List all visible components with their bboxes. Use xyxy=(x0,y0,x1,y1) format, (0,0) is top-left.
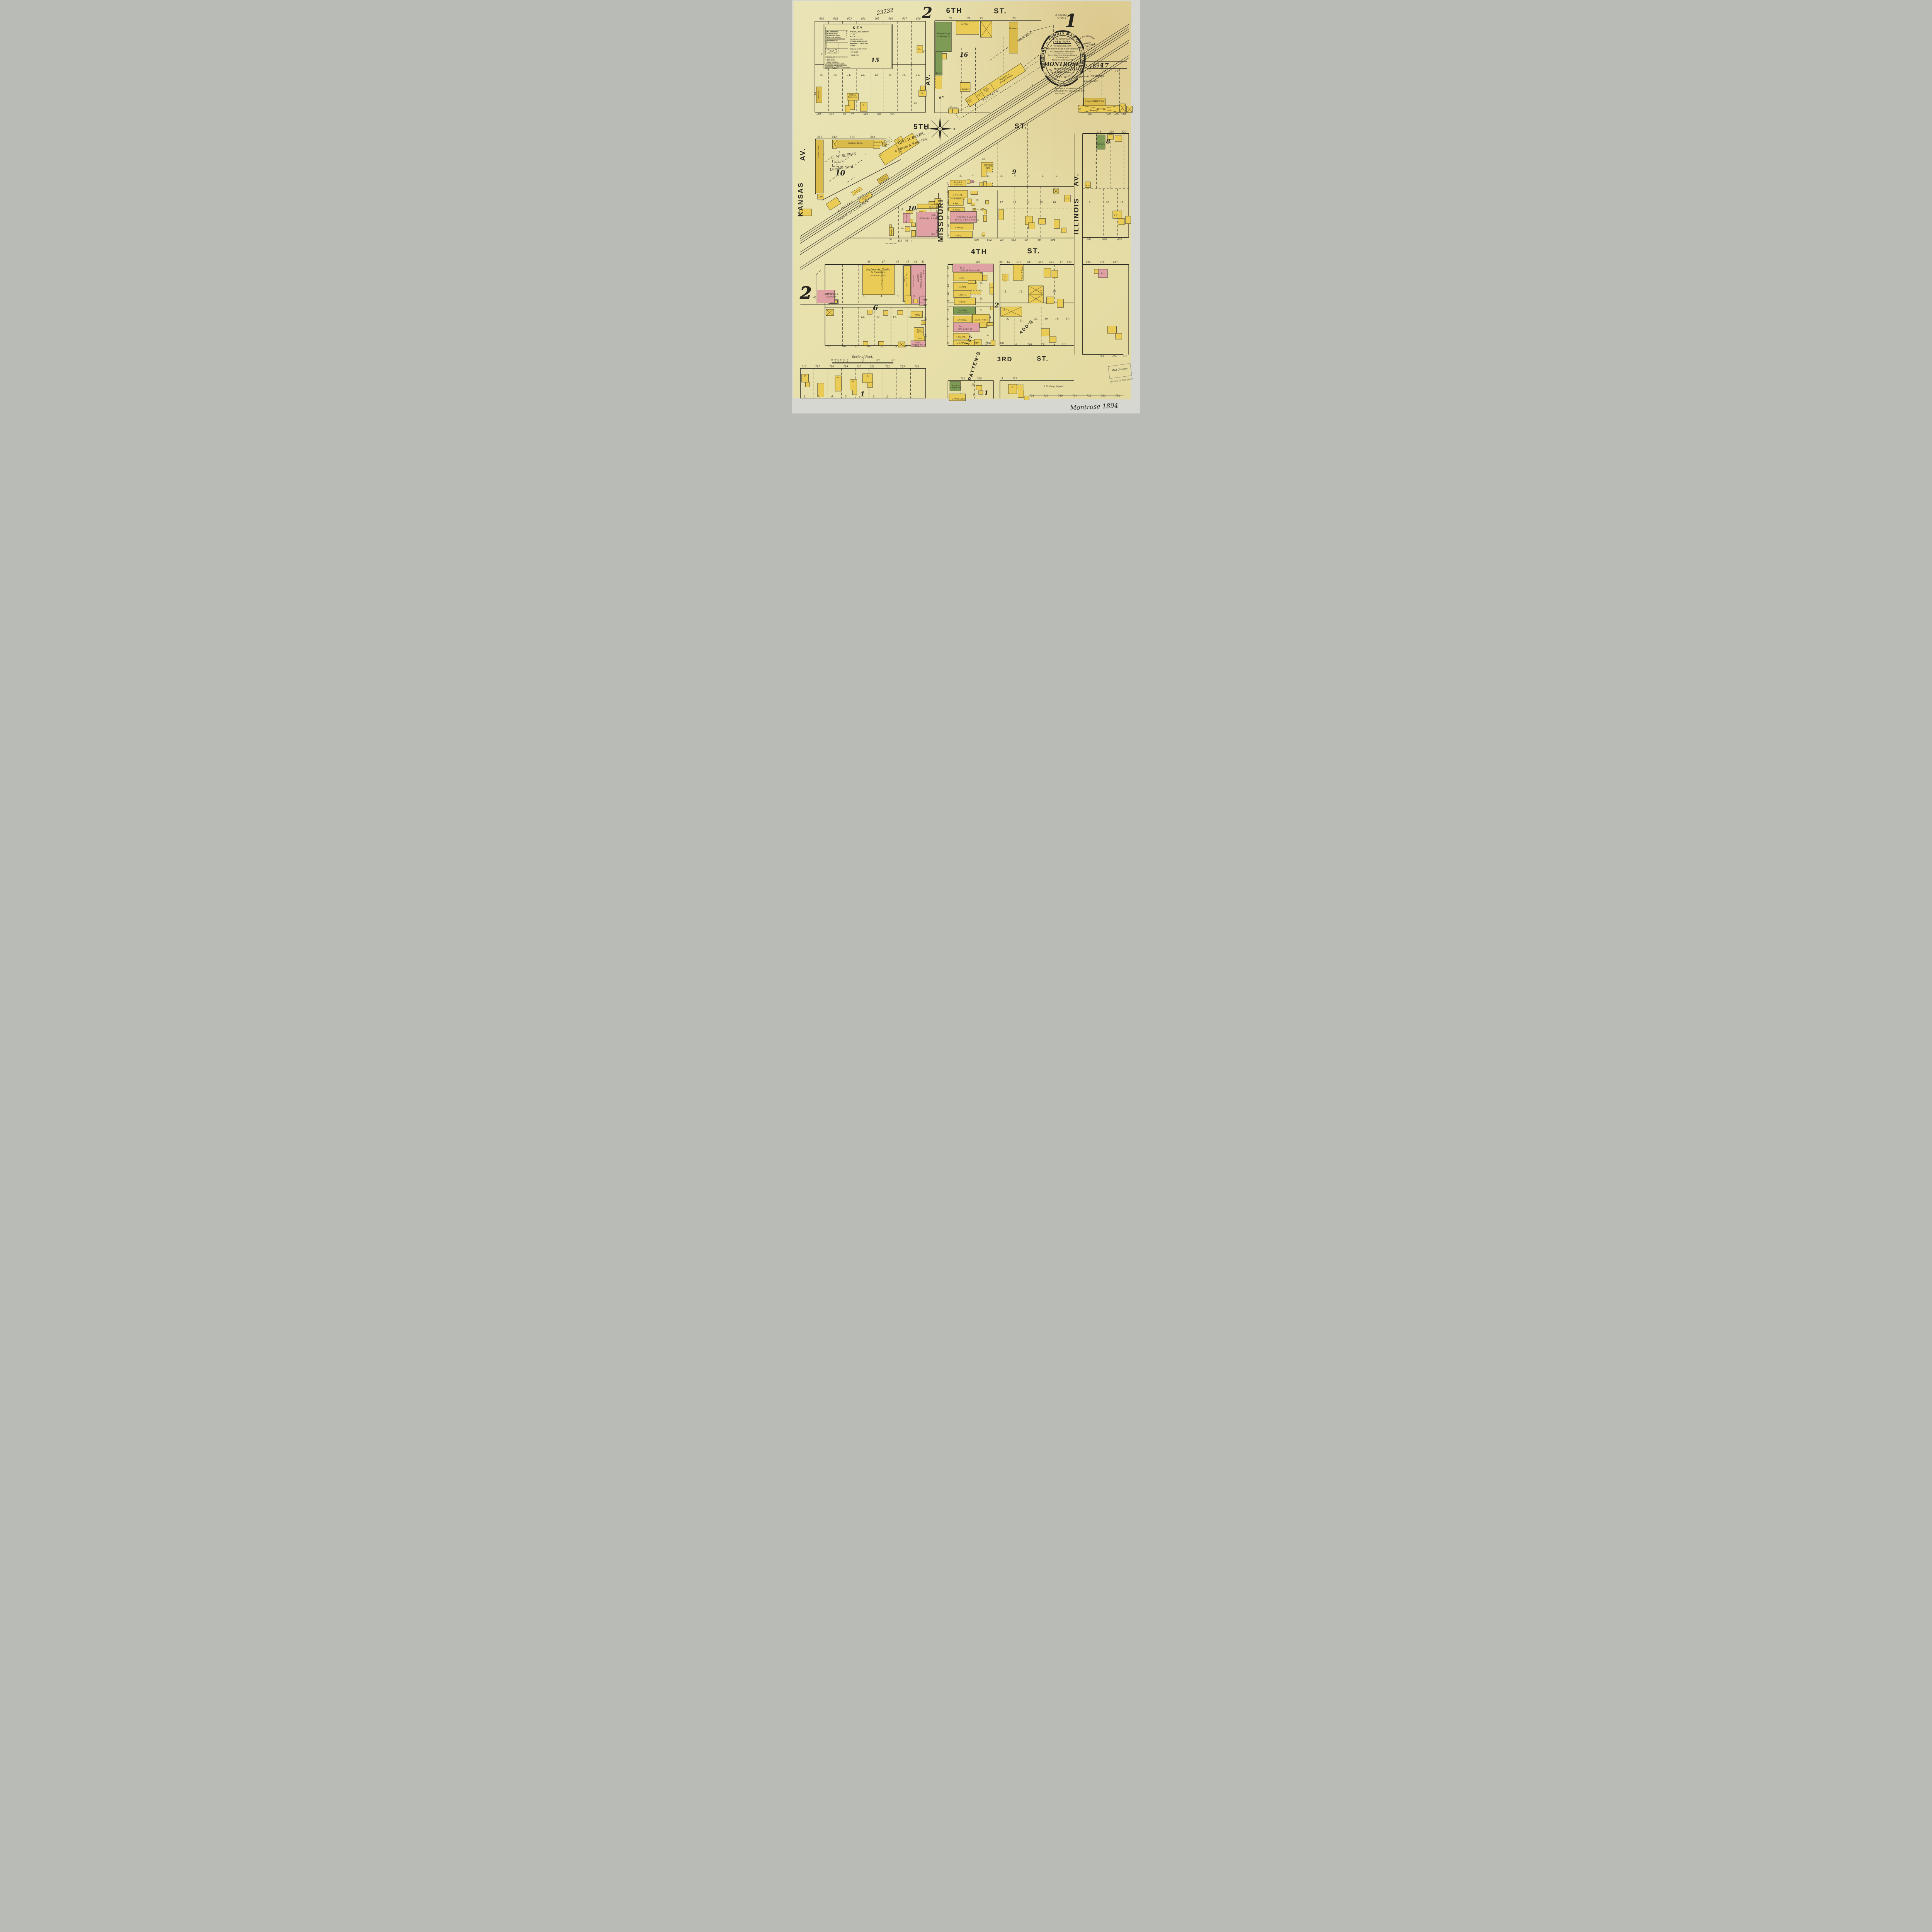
building xyxy=(912,230,916,236)
lot-number: 13 xyxy=(947,284,949,287)
building-label: D. x xyxy=(1101,273,1105,275)
lot-number: 20 xyxy=(1000,239,1003,241)
lot-number: 67 xyxy=(851,113,854,116)
building-label: HETER xyxy=(983,164,993,167)
lot-number: 7. xyxy=(972,174,974,177)
building-label: Livery. xyxy=(1090,109,1098,112)
block-number: 17 xyxy=(1100,61,1109,69)
building-label: Vac. xyxy=(918,48,922,50)
lot-number: 605 xyxy=(875,17,879,20)
lot-number: 9 xyxy=(947,318,949,320)
building xyxy=(912,223,916,227)
lot-number: 14. xyxy=(893,316,897,318)
lot-number: 39 xyxy=(924,334,927,337)
scale-tick-label: 40 xyxy=(834,359,837,361)
street-label: AV. xyxy=(1072,173,1080,186)
building xyxy=(990,307,993,310)
lot-number: 73 xyxy=(949,17,952,20)
street-label: AV. xyxy=(925,73,932,85)
lot-number: 2. xyxy=(913,295,916,298)
seal-county: Henry County. xyxy=(1053,68,1071,70)
lot-number: 8. xyxy=(980,282,983,284)
compass-e: E xyxy=(954,128,955,131)
building xyxy=(983,182,986,186)
building xyxy=(942,54,947,59)
building-label: Tin Shop. xyxy=(957,310,968,312)
key-left-row: STEAM BOILER xyxy=(827,40,838,41)
lot-number: 14 xyxy=(947,274,949,277)
building xyxy=(905,296,911,304)
building-label: D. G. xyxy=(959,267,965,269)
lot-number: 1. xyxy=(1056,175,1058,177)
lot-number: 16. xyxy=(1053,201,1057,204)
street-label: ST. xyxy=(1015,122,1028,130)
building-label: Bl. Sm. & xyxy=(1097,142,1104,144)
lot-number: 3. xyxy=(987,325,989,328)
lot-number: 78 xyxy=(1079,108,1082,111)
building-label: x Lumber. xyxy=(960,88,970,90)
lot-number: 6. xyxy=(980,298,983,301)
building-label: 6 IRON COLUMNS xyxy=(913,276,914,287)
lot-number: 23 xyxy=(947,216,949,219)
lot-number: 603 xyxy=(847,17,852,20)
lot-number: 704 xyxy=(902,345,907,348)
street-label: ST. xyxy=(1037,355,1049,362)
lot-number: 2. xyxy=(1041,175,1044,177)
block-number: 9 xyxy=(1012,168,1016,175)
lot-number: 4. xyxy=(1014,175,1017,177)
lot-number: 11. xyxy=(1115,70,1119,72)
lot-number: 610 xyxy=(1017,261,1021,264)
lot-number: 10. xyxy=(833,74,837,77)
lot-number: 5 xyxy=(1015,343,1017,345)
lot-number: 723 xyxy=(900,366,905,368)
lot-number: 14. xyxy=(1026,201,1030,204)
building-label: x P.O. xyxy=(957,343,963,345)
building xyxy=(968,281,975,284)
lot-number: 719 xyxy=(844,366,848,368)
building-label: x Mill'y. xyxy=(958,294,966,296)
building-label: x Photo Gall'y. xyxy=(952,398,965,400)
building xyxy=(968,199,972,203)
scale-tick-label: 10 xyxy=(843,359,845,361)
lot-number: 6. xyxy=(916,209,918,211)
lot-number: 607 xyxy=(1117,238,1122,241)
building-label: D. xyxy=(866,375,869,378)
lot-number: 714 xyxy=(1112,355,1117,357)
lot-number: 732 xyxy=(1087,395,1091,398)
building-label: Lumber Shed. xyxy=(818,145,820,160)
key-legend: KEY NO. OF STORIES3SHINGLE ROOF×COMPOST'… xyxy=(824,24,892,69)
lot-number: 33 xyxy=(894,345,897,348)
lot-number: 713 xyxy=(1099,355,1104,357)
lot-number: 8. xyxy=(1089,201,1091,204)
lot-number: 722 xyxy=(885,366,890,368)
lot-number: 13. xyxy=(876,316,880,318)
building-label: Bl. Sm. & xyxy=(951,385,959,387)
seal-noprotection: NO PROTECTION AGAINST FIRE. xyxy=(1052,53,1073,54)
building xyxy=(972,314,989,323)
building xyxy=(1017,385,1023,390)
lot-number: 40 xyxy=(924,317,927,321)
building-label: Well & Wind Mill. xyxy=(886,243,897,245)
building-label: Vac. xyxy=(901,228,905,230)
building-label: IRON CL. ALL SIDES. xyxy=(957,312,969,314)
scale-tick-label: 30 xyxy=(837,359,839,361)
building-label: Mill'y. x xyxy=(915,314,922,316)
building-label: Drugs. xyxy=(914,342,921,344)
building-label: Rest'. xyxy=(917,329,922,331)
seal-date: + APRIL 1894 + xyxy=(1055,71,1071,74)
building-label: x Gro. xyxy=(955,235,962,237)
lot-number: 65 xyxy=(814,92,816,95)
building-label: 16' xyxy=(836,163,838,165)
building xyxy=(980,182,983,186)
building xyxy=(1115,136,1122,141)
lot-number: 3. xyxy=(897,295,899,298)
lot-number: 501 xyxy=(816,113,821,116)
building-label: ELEV'D. W. TANK. xyxy=(1094,101,1105,102)
lot-number: 12. xyxy=(1000,201,1004,204)
building-label: HO. xyxy=(985,167,990,170)
key-right-row: FRAME PARTITION xyxy=(850,38,863,40)
building-label: Lunch & xyxy=(954,181,963,184)
building-label: I.O.O.F. HALL 2ND xyxy=(881,270,883,290)
lot-number: 18. xyxy=(1055,318,1059,321)
building xyxy=(889,225,891,228)
building xyxy=(1107,326,1116,333)
building xyxy=(953,272,982,281)
lot-number: 7. xyxy=(818,395,820,398)
building xyxy=(1126,216,1131,224)
building-label: Barber. xyxy=(922,299,928,301)
lot-number: 10. xyxy=(971,384,975,386)
lot-number: 729 xyxy=(1044,395,1048,398)
sanborn-map-page: P l a t f o r m .GentsWaitingR'm.TicketO… xyxy=(792,0,1140,413)
building-label: x Drs. Off. xyxy=(956,336,966,338)
building-label: D. xyxy=(837,377,840,379)
building xyxy=(935,52,942,75)
building xyxy=(953,333,969,339)
building-label: Off's. & Printing 2d xyxy=(961,269,980,272)
lot-number: 6. xyxy=(987,175,990,178)
lot-number: 14. xyxy=(888,74,892,77)
street-label: 4TH xyxy=(971,247,987,255)
building xyxy=(970,291,981,294)
building-label: Barber. xyxy=(917,331,923,333)
lot-number: 7. xyxy=(1095,162,1097,165)
building-label: Granary. xyxy=(1009,27,1018,30)
lot-number: 606 xyxy=(1102,238,1107,241)
building xyxy=(883,311,888,315)
lot-number: 47 xyxy=(881,261,885,264)
lot-number: 520 xyxy=(1122,131,1126,133)
building xyxy=(1046,297,1054,304)
building xyxy=(979,391,983,395)
lot-number: 66 xyxy=(843,113,846,116)
lot-number: 12 xyxy=(947,292,949,295)
building-label: D.G. Clo. & B.& S. xyxy=(956,216,976,219)
lot-number: 603 xyxy=(1011,239,1016,241)
lot-number: 3. xyxy=(1032,84,1034,87)
lot-number: 4. xyxy=(880,295,883,298)
lot-number: 715 xyxy=(1122,355,1127,357)
lot-number: 3. xyxy=(1028,175,1030,177)
key-left-row: SHINGLE ROOF xyxy=(827,33,838,35)
lot-number: 32 xyxy=(881,345,884,348)
lot-number: 703 xyxy=(867,345,871,348)
block-number: 15 xyxy=(871,56,879,64)
building xyxy=(1024,396,1029,400)
lot-number: 31 xyxy=(855,345,858,348)
building-label: Notions. x xyxy=(929,206,939,208)
building-label: Coop. xyxy=(982,235,986,236)
note-title: Note; xyxy=(1059,85,1066,87)
lot-number: 68 xyxy=(914,102,917,105)
building-label: Shingles xyxy=(834,161,841,163)
building xyxy=(1097,135,1105,149)
building xyxy=(953,323,979,332)
building-label: Harness. xyxy=(905,214,908,223)
lot-number: 720 xyxy=(857,366,861,368)
building-label: x Bl. Sm. xyxy=(934,72,943,75)
building-label: Smo. Ho. xyxy=(980,209,986,210)
lot-number: 54 xyxy=(905,240,908,242)
lot-number: 9. xyxy=(1089,70,1091,72)
lot-number: 45 xyxy=(906,261,909,264)
seal-population: Population 900. xyxy=(1053,45,1071,47)
lot-number: 510 xyxy=(1121,113,1126,116)
lot-number: 513 xyxy=(850,136,855,139)
key-side-note: DOT REPRESENTS OPENING xyxy=(839,43,840,53)
lot-number: 712 xyxy=(1062,344,1066,346)
lot-number: 702 xyxy=(842,345,846,348)
lot-number: 1. xyxy=(865,153,867,156)
lot-number: 19. xyxy=(1044,318,1048,321)
seal-winds: Prevailing Winds; S.W. xyxy=(1051,59,1073,61)
building xyxy=(1057,299,1063,308)
building-label: Vac. o xyxy=(922,303,927,305)
lot-number: 4. xyxy=(823,153,825,156)
lot-number: 26 xyxy=(947,191,949,194)
building-label: Gro. xyxy=(932,214,936,216)
lot-number: 8 xyxy=(947,326,949,327)
lot-number: 55 xyxy=(937,230,939,233)
lot-number: 503 xyxy=(864,113,868,116)
building-label: Coop. x xyxy=(919,211,925,213)
street-label: 5TH xyxy=(913,122,930,131)
lot-number: 604 xyxy=(861,17,866,20)
scale-tick-label: 0 xyxy=(847,359,848,361)
lot-number: 15. xyxy=(1039,290,1043,293)
lot-number: 51 xyxy=(814,296,816,299)
lot-number: 16 xyxy=(1007,261,1010,264)
lot-number: 1. xyxy=(900,395,903,398)
building-label: x Harness. xyxy=(949,107,958,109)
building-label: Gro. xyxy=(923,269,925,274)
building xyxy=(920,86,925,90)
key-right-row: WINDOWS · ·· SHUTTERS xyxy=(850,43,868,44)
lot-number: 53 xyxy=(899,240,902,242)
scale-tick-label: 20 xyxy=(839,359,842,361)
lot-number: 709 xyxy=(1000,342,1004,345)
street-label: 3RD xyxy=(997,356,1013,363)
lot-number: 17. xyxy=(1066,318,1070,321)
building xyxy=(986,201,989,204)
lot-number: 701 xyxy=(827,345,831,348)
building-label: D. xyxy=(862,104,865,107)
lot-number: 70 xyxy=(923,50,926,53)
note-line-3: ARBITRARY. xyxy=(1054,93,1066,95)
block-number: 6 xyxy=(873,304,878,312)
building-label: W. D. xyxy=(1086,184,1090,186)
lot-number: 615 xyxy=(1086,261,1091,264)
seal-address: 117 & 119 Broadway xyxy=(1051,38,1075,41)
building-label: x Drugs. xyxy=(955,227,964,229)
building-label: W. R'm. & Hotel R'ms. 2d xyxy=(955,219,979,221)
building-label: Calaboose. xyxy=(826,296,837,298)
building-label: MASONIC HALL 2D xyxy=(912,344,926,346)
street-label: ST. xyxy=(994,7,1007,15)
building-label: x Meat. xyxy=(953,209,961,211)
block-number: 2 xyxy=(799,284,812,303)
building xyxy=(1116,333,1122,339)
building-label: Hardw. xyxy=(917,274,920,282)
scale-tick-label: 50 xyxy=(862,359,864,361)
lot-number: 602 xyxy=(987,239,992,241)
lot-number: 7 xyxy=(947,336,949,337)
lot-number: 28 xyxy=(981,158,985,161)
building-label: D. xyxy=(804,375,806,378)
lot-number: 22. xyxy=(1006,318,1010,321)
building-label: Book. xyxy=(918,338,923,340)
key-right-row: II " " 12 " " " xyxy=(850,34,858,35)
building xyxy=(981,169,986,177)
building-label: Gro. xyxy=(959,325,963,328)
key-right-row: " 2ND & 4TH " xyxy=(850,54,860,56)
lot-number: 5. xyxy=(980,309,982,312)
building-label: x Bakery. xyxy=(954,184,963,186)
lot-number: 614 xyxy=(1067,261,1071,264)
note-line-1: RATE BOOK NUMBERS USED, xyxy=(1054,88,1082,90)
scale-title: Scale of Feet. xyxy=(852,355,873,359)
building xyxy=(986,183,992,186)
building-label: D. xyxy=(921,92,924,95)
lot-number: 74 xyxy=(967,17,970,20)
building xyxy=(976,385,982,390)
lot-number: 44 xyxy=(914,261,917,264)
building-label: x Wagon Shop. xyxy=(950,386,962,388)
building-label: Lime. xyxy=(818,196,823,198)
lot-number: 21 xyxy=(947,233,949,236)
lot-number: 11. xyxy=(847,74,851,77)
lot-number: 607 xyxy=(902,17,907,20)
lot-number: 10. xyxy=(1102,70,1106,72)
lot-number: 609 xyxy=(998,261,1003,264)
building-label: Wagon Shop. xyxy=(937,32,951,35)
building-label: Old Fruit xyxy=(849,94,856,96)
lot-number: 613 xyxy=(1049,261,1054,264)
seal-water: Water Facilities Private Wells & xyxy=(1048,54,1077,57)
building xyxy=(990,288,994,294)
building xyxy=(953,109,959,113)
key-right-row: " 1ST & 3RD " xyxy=(850,51,860,53)
key-left-row: SLATE OR TIN ROOF xyxy=(827,37,841,38)
lot-number: 726 xyxy=(977,378,981,380)
building xyxy=(862,374,872,383)
building-label: WIND MILL & 36' xyxy=(1094,100,1104,101)
lot-number: 731 xyxy=(1072,395,1077,398)
lot-number: 518 xyxy=(1097,131,1101,133)
block-number: 1 xyxy=(1065,10,1077,31)
lot-number: 8. xyxy=(821,53,823,56)
lot-number: 13. xyxy=(1013,201,1017,204)
building xyxy=(1052,270,1058,278)
key-right-row: STABLE xyxy=(850,45,855,47)
building xyxy=(1054,219,1060,228)
building-label: Evaporator. xyxy=(848,96,857,98)
lot-number: 12. xyxy=(861,74,865,77)
lot-number: 716 xyxy=(802,366,806,368)
block-number: 2 xyxy=(922,4,932,22)
building xyxy=(905,227,910,231)
building xyxy=(1009,22,1018,53)
lot-number: 6 xyxy=(947,342,949,344)
lot-number: 512 xyxy=(832,136,837,139)
lot-number: 4. xyxy=(989,316,992,319)
building-label: 1½ xyxy=(1002,309,1005,311)
lot-number: 27 xyxy=(947,182,950,185)
building-label: x Gro. xyxy=(959,277,965,279)
lot-number: 4. xyxy=(859,395,861,398)
key-bottom-row: SOLID " " " " - METAL xyxy=(825,68,837,69)
building xyxy=(980,323,987,327)
building-label: Wagon Shop. xyxy=(1096,144,1105,146)
lot-number: 52 xyxy=(889,238,892,241)
building-label: Furn'e. & Imp's. xyxy=(920,272,922,289)
lot-number: 504 xyxy=(877,113,881,116)
lot-number: 724 xyxy=(914,366,919,368)
lot-number: 12. xyxy=(1019,290,1023,293)
building-label: Poultry & Eggs x xyxy=(1021,265,1023,280)
building-label: x Painting 2d xyxy=(937,36,950,38)
building xyxy=(1009,384,1017,394)
building xyxy=(999,209,1003,220)
lot-number: 8. xyxy=(804,395,806,398)
lot-number: 5. xyxy=(845,395,847,398)
building xyxy=(1041,328,1050,336)
building xyxy=(956,21,979,34)
building-label: 1½ xyxy=(1083,105,1086,107)
building-label: 15' xyxy=(985,344,988,346)
note-line-2: NUMBERS 501 AND ABOVE ARE xyxy=(1054,90,1085,93)
street-label: AV. xyxy=(799,148,806,161)
lot-number: 10. xyxy=(1106,201,1110,204)
building xyxy=(1018,390,1024,398)
building-label: KETTLE xyxy=(973,209,979,210)
building-label: D. xyxy=(820,386,822,388)
building xyxy=(867,310,872,314)
key-right-row: WINDOW IN 1ST STORY xyxy=(850,48,867,50)
building-label: Oven. xyxy=(972,181,976,183)
lot-number: 7. xyxy=(980,290,983,293)
building xyxy=(982,275,987,281)
lot-number: 76 xyxy=(1012,17,1015,20)
building xyxy=(818,383,824,397)
building-label: Off's. & Hall 2d xyxy=(958,328,972,330)
building xyxy=(863,341,868,345)
building-label: Poultry Ho. x xyxy=(1004,274,1006,282)
